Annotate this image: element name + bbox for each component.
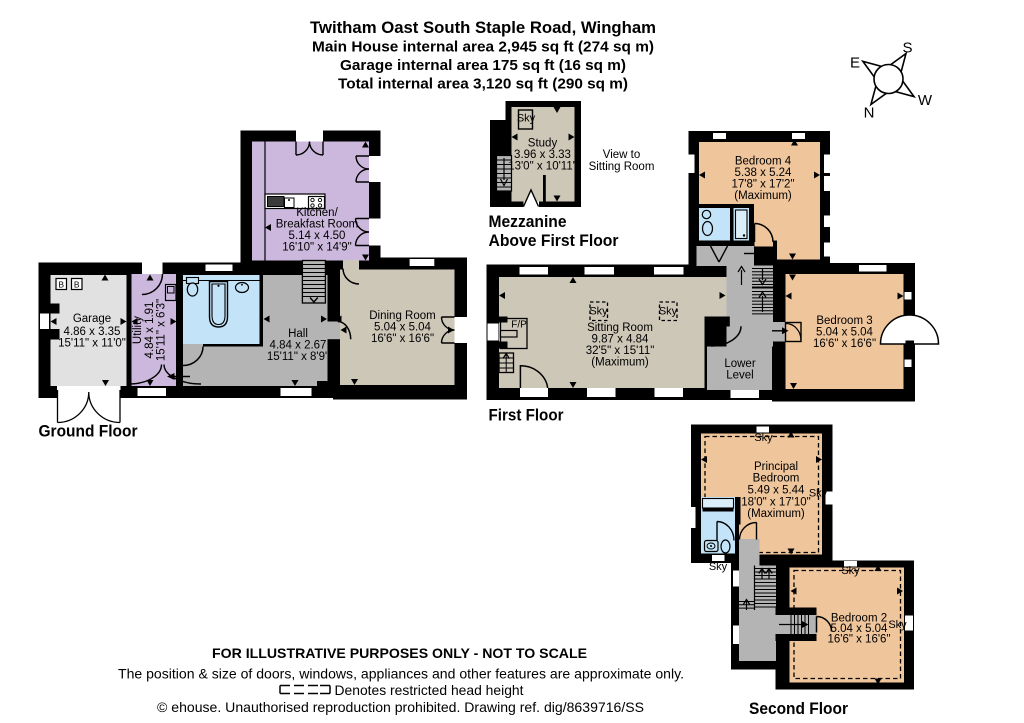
svg-text:5.14 x 4.50: 5.14 x 4.50 (289, 230, 346, 242)
svg-text:Total internal area 3,120 sq f: Total internal area 3,120 sq ft (290 sq … (338, 76, 628, 93)
svg-text:15'11" x 6'3": 15'11" x 6'3" (156, 299, 168, 361)
svg-text:Sky: Sky (754, 432, 773, 444)
svg-text:Sky: Sky (709, 561, 728, 573)
svg-text:© ehouse. Unauthorised reprodu: © ehouse. Unauthorised reproduction proh… (157, 699, 644, 715)
svg-text:FOR ILLUSTRATIVE PURPOSES ONLY: FOR ILLUSTRATIVE PURPOSES ONLY - NOT TO … (212, 645, 587, 661)
svg-text:Kitchen/: Kitchen/ (296, 207, 338, 219)
svg-text:15'11" x 8'9": 15'11" x 8'9" (267, 351, 329, 363)
svg-text:Utility: Utility (132, 316, 144, 344)
svg-text:B: B (58, 280, 64, 290)
svg-text:Mezzanine: Mezzanine (489, 212, 567, 231)
svg-text:(Maximum): (Maximum) (734, 190, 792, 202)
svg-text:Twitham Oast South Staple Road: Twitham Oast South Staple Road, Wingham (310, 19, 656, 37)
svg-text:W: W (918, 92, 933, 109)
svg-text:5.49 x 5.44: 5.49 x 5.44 (748, 485, 806, 497)
svg-text:N: N (864, 105, 875, 122)
svg-text:4.84 x 2.67: 4.84 x 2.67 (270, 340, 327, 352)
svg-text:Sky: Sky (589, 306, 608, 318)
svg-text:17'8" x 17'2": 17'8" x 17'2" (731, 179, 794, 191)
svg-text:16'6" x 16'6": 16'6" x 16'6" (813, 338, 876, 350)
svg-text:(Maximum): (Maximum) (747, 508, 805, 520)
svg-text:32'5" x 15'11": 32'5" x 15'11" (586, 345, 655, 357)
svg-text:5.38 x 5.24: 5.38 x 5.24 (735, 167, 793, 179)
svg-text:9.87 x 4.84: 9.87 x 4.84 (592, 334, 650, 346)
svg-text:Garage internal area 175 sq ft: Garage internal area 175 sq ft (16 sq m) (340, 57, 626, 74)
svg-text:Bedroom 4: Bedroom 4 (735, 156, 792, 168)
svg-text:E: E (850, 55, 860, 72)
svg-text:View to: View to (603, 149, 641, 161)
svg-text:Garage: Garage (73, 313, 111, 325)
svg-text:Main House internal area 2,945: Main House internal area 2,945 sq ft (27… (312, 39, 654, 56)
svg-text:16'6" x 16'6": 16'6" x 16'6" (371, 333, 434, 345)
svg-text:The position & size of doors,: The position & size of doors, windows, a… (118, 666, 684, 682)
svg-text:Bedroom 3: Bedroom 3 (816, 315, 872, 327)
svg-text:Bedroom: Bedroom (753, 473, 800, 485)
svg-text:Hall: Hall (288, 328, 308, 340)
svg-text:F/P: F/P (511, 320, 527, 331)
svg-text:3.96 x 3.33: 3.96 x 3.33 (514, 149, 571, 161)
svg-text:Sky: Sky (659, 306, 678, 318)
svg-text:15'11" x 11'0": 15'11" x 11'0" (58, 338, 126, 350)
svg-text:First Floor: First Floor (489, 406, 564, 425)
svg-text:18'0" x 17'10": 18'0" x 17'10" (741, 497, 810, 509)
svg-text:Study: Study (528, 138, 558, 150)
svg-text:Second Floor: Second Floor (749, 699, 848, 718)
svg-text:Sitting Room: Sitting Room (589, 161, 655, 173)
svg-text:5.04 x 5.04: 5.04 x 5.04 (374, 322, 432, 334)
svg-text:16'6" x 16'6": 16'6" x 16'6" (827, 634, 890, 646)
svg-text:Principal: Principal (754, 461, 798, 473)
svg-text:4.84 x 1.91: 4.84 x 1.91 (144, 302, 156, 359)
svg-text:S: S (902, 40, 912, 57)
svg-text:Sky: Sky (517, 113, 536, 125)
svg-text:Above First Floor: Above First Floor (489, 231, 619, 250)
svg-text:Dining Room: Dining Room (369, 310, 435, 322)
svg-text:Sitting Room: Sitting Room (587, 322, 653, 334)
svg-text:5.04 x 5.04: 5.04 x 5.04 (816, 327, 874, 339)
svg-text:Sky: Sky (888, 619, 907, 631)
svg-text:Level: Level (726, 370, 754, 382)
svg-text:4.86 x 3.35: 4.86 x 3.35 (64, 326, 121, 338)
svg-text:Sky: Sky (809, 488, 828, 500)
svg-text:B: B (74, 280, 80, 290)
svg-text:Lower: Lower (724, 358, 755, 370)
svg-text:Sky: Sky (841, 565, 860, 577)
svg-text:Ground Floor: Ground Floor (39, 422, 138, 441)
svg-text:Denotes restricted head height: Denotes restricted head height (335, 682, 524, 698)
svg-text:(Maximum): (Maximum) (591, 357, 649, 369)
svg-text:16'10" x 14'9": 16'10" x 14'9" (282, 242, 351, 254)
svg-text:Breakfast Room: Breakfast Room (276, 219, 358, 231)
svg-text:13'0" x 10'11": 13'0" x 10'11" (508, 161, 577, 173)
